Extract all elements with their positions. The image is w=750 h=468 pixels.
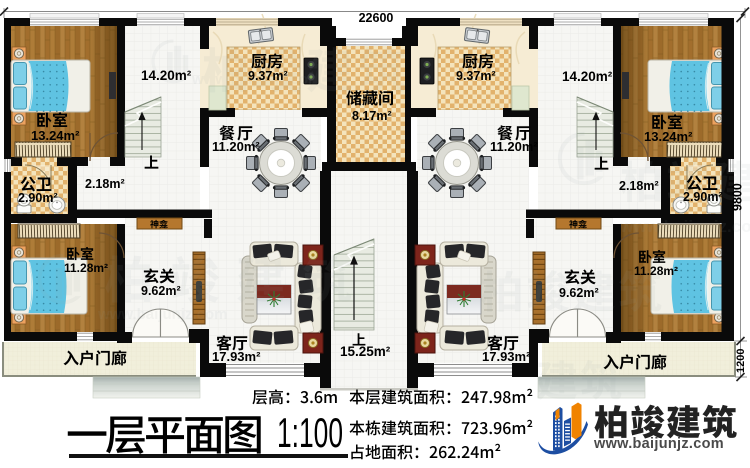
- svg-text:1:100: 1:100: [277, 409, 343, 456]
- svg-text:17.93m²: 17.93m²: [482, 349, 531, 364]
- svg-text:www.baijunjz.com: www.baijunjz.com: [97, 306, 227, 323]
- svg-text:14.20m²: 14.20m²: [562, 69, 613, 84]
- svg-text:9800: 9800: [731, 183, 745, 211]
- svg-text:9.37m²: 9.37m²: [456, 69, 496, 83]
- svg-text:2.90m²: 2.90m²: [18, 191, 58, 205]
- svg-text:8.17m²: 8.17m²: [352, 109, 392, 123]
- svg-text:9.62m²: 9.62m²: [141, 284, 181, 298]
- svg-text:17.93m²: 17.93m²: [212, 349, 261, 364]
- svg-text:www.baijunjz.com: www.baijunjz.com: [619, 217, 750, 236]
- svg-text:22600: 22600: [359, 11, 394, 25]
- svg-text:11.20m²: 11.20m²: [212, 139, 260, 154]
- svg-text:15.25m²: 15.25m²: [340, 344, 391, 359]
- svg-text:9.62m²: 9.62m²: [559, 286, 599, 300]
- svg-text:9.37m²: 9.37m²: [248, 69, 288, 83]
- svg-text:13.24m²: 13.24m²: [31, 128, 80, 143]
- svg-text:2.18m²: 2.18m²: [619, 179, 659, 193]
- svg-text:1200: 1200: [735, 349, 747, 373]
- svg-text:14.20m²: 14.20m²: [141, 68, 192, 83]
- svg-text:11.28m²: 11.28m²: [634, 264, 678, 278]
- svg-text:13.24m²: 13.24m²: [644, 129, 693, 144]
- svg-text:11.20m²: 11.20m²: [490, 139, 538, 154]
- svg-text:2.90m²: 2.90m²: [683, 190, 723, 204]
- svg-text:11.28m²: 11.28m²: [64, 261, 108, 275]
- svg-text:2.18m²: 2.18m²: [85, 177, 125, 191]
- svg-text:www.baijunjz.com: www.baijunjz.com: [593, 436, 724, 452]
